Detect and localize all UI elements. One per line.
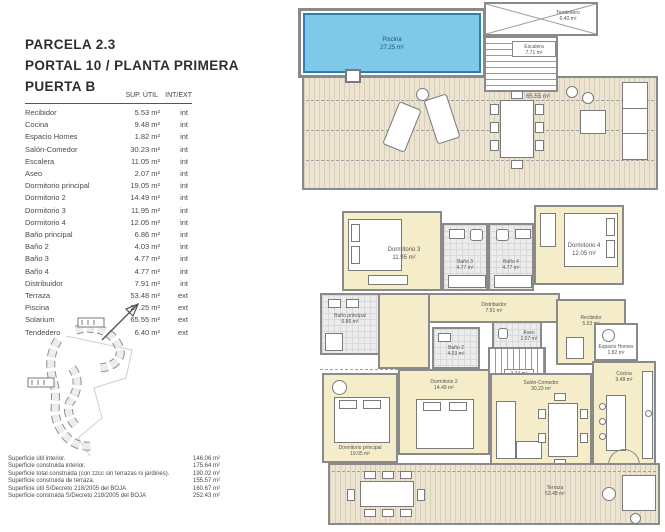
table-row: Recibidor5.53 m²int: [25, 107, 192, 119]
barbecue-counter: [580, 110, 606, 134]
room-area: 9.48 m²: [108, 119, 160, 131]
dining-table: [548, 403, 578, 457]
summary-value: 155.57 m²: [178, 478, 220, 485]
room-scope: ext: [160, 290, 192, 302]
room-label: Dormitorio 2: [25, 192, 108, 204]
summary-row: Superficie construida S/Decreto 218/2005…: [8, 493, 220, 500]
table-row: Dormitorio 311.95 m²int: [25, 205, 192, 217]
table-row: Baño 44.77 m²int: [25, 266, 192, 278]
swimming-pool: Piscina 27.25 m²: [303, 13, 481, 73]
room-area: 6.40 m²: [542, 16, 594, 22]
summary-label: Superficie útil interior.: [8, 456, 178, 463]
room-label: Espacio Homes 1.82 m²: [596, 344, 636, 356]
summary-row: Superficie total construida (con zzcc si…: [8, 471, 220, 478]
bed: [416, 399, 474, 449]
table-row: Dormitorio principal19.05 m²int: [25, 180, 192, 192]
room-area: 2.07 m²: [506, 336, 552, 342]
room-label: Dormitorio 4 12.05 m²: [546, 243, 622, 258]
side-table: [416, 88, 429, 101]
room-area: 4.77 m²: [108, 266, 160, 278]
kitchen-counter: [642, 371, 653, 459]
sink: [328, 299, 341, 308]
sink: [438, 333, 451, 342]
room-scope: int: [160, 144, 192, 156]
room-scope: int: [160, 107, 192, 119]
room-scope: int: [160, 266, 192, 278]
room-scope: int: [160, 180, 192, 192]
summary-row: Superficie construida de terraza.155.57 …: [8, 478, 220, 485]
room-label: Cocina: [25, 119, 108, 131]
sun-lounger: [423, 93, 460, 144]
chair: [364, 509, 376, 517]
upper-staircase: Escalera 7.71 m²: [484, 36, 558, 92]
stool: [599, 418, 606, 425]
overhang-line: [332, 471, 656, 472]
room-label: Dormitorio 4: [25, 217, 108, 229]
distribuidor: Distribuidor 7.91 m²: [428, 293, 560, 323]
pool-room: Piscina 27.25 m²: [298, 8, 486, 78]
room-label: Dormitorio 3 11.95 m²: [368, 247, 440, 262]
summary-row: Superficie útil S/Decreto 218/2005 del B…: [8, 486, 220, 493]
room-area: 5.53 m²: [108, 107, 160, 119]
room-scope: int: [160, 229, 192, 241]
bed: [564, 213, 618, 267]
table-row: Cocina9.48 m²int: [25, 119, 192, 131]
room-area: 19.05 m²: [324, 451, 396, 457]
surface-summary: Superficie útil interior.146.06 m² Super…: [8, 456, 220, 500]
bathtub: [494, 275, 532, 288]
room-scope: int: [160, 253, 192, 265]
plan-sheet: PARCELA 2.3 PORTAL 10 / PLANTA PRIMERA P…: [0, 0, 665, 532]
chair: [382, 471, 394, 479]
room-label: Baño 2 4.03 m²: [434, 345, 478, 357]
room-area: 12.05 m²: [108, 217, 160, 229]
room-label: Terraza 53.48 m²: [520, 485, 590, 497]
bano-4: Baño 4 4.77 m²: [488, 223, 534, 291]
projection-line: [320, 369, 398, 370]
room-scope: int: [160, 241, 192, 253]
shower: [325, 333, 343, 351]
terraza: Terraza 53.48 m²: [328, 463, 660, 525]
room-area: 11.05 m²: [108, 156, 160, 168]
chair: [490, 104, 499, 115]
bano-3: Baño 3 4.77 m²: [442, 223, 488, 291]
table-row: Baño 34.77 m²int: [25, 253, 192, 265]
bano-2: Baño 2 4.03 m²: [432, 327, 480, 369]
sun-lounger: [382, 101, 421, 153]
room-label: Dormitorio principal: [25, 180, 108, 192]
aseo: Aseo 2.07 m²: [492, 321, 542, 349]
chair: [490, 122, 499, 133]
room-area: 19.05 m²: [108, 180, 160, 192]
chair: [580, 433, 588, 443]
chair: [535, 104, 544, 115]
room-label: Baño 3 4.77 m²: [444, 259, 486, 271]
sink-basin: [582, 92, 594, 104]
room-label: Distribuidor 7.91 m²: [430, 302, 558, 314]
cocina: Cocina 9.48 m²: [592, 361, 656, 465]
outdoor-dining-table: [360, 481, 414, 507]
chair: [400, 509, 412, 517]
room-name: Dormitorio 3: [368, 247, 440, 255]
room-scope: int: [160, 217, 192, 229]
sofa-chaise: [516, 441, 542, 459]
toilet: [470, 229, 483, 241]
dormitorio-principal: Dormitorio principal 19.05 m²: [322, 373, 398, 463]
room-area: 4.03 m²: [108, 241, 160, 253]
summary-value: 146.06 m²: [178, 456, 220, 463]
chair: [554, 393, 566, 401]
chair: [490, 140, 499, 151]
chair: [417, 489, 425, 501]
table-row: Espacio Homes1.82 m²int: [25, 131, 192, 143]
washing-machine: [602, 329, 615, 342]
sink: [645, 410, 652, 417]
room-area: 4.77 m²: [490, 265, 532, 271]
room-scope: int: [160, 119, 192, 131]
chair: [535, 122, 544, 133]
room-scope: int: [160, 205, 192, 217]
table-row: Dormitorio 214.49 m²int: [25, 192, 192, 204]
sheet-title: PARCELA 2.3 PORTAL 10 / PLANTA PRIMERA P…: [25, 34, 239, 97]
table-row: Distribuidor7.91 m²int: [25, 278, 192, 290]
sink: [449, 229, 465, 239]
location-arrow-icon: [96, 292, 150, 346]
room-area: 11.95 m²: [108, 205, 160, 217]
dormitorio-2: Dormitorio 2 14.49 m²: [398, 369, 490, 455]
table-row: Dormitorio 412.05 m²int: [25, 217, 192, 229]
summary-label: Superficie construida S/Decreto 218/2005…: [8, 493, 178, 500]
stool: [599, 433, 606, 440]
solarium-cabinets: [622, 82, 648, 160]
room-area: 6.86 m²: [322, 319, 378, 325]
summary-value: 175.64 m²: [178, 463, 220, 470]
room-area: 4.77 m²: [108, 253, 160, 265]
summary-value: 160.67 m²: [178, 486, 220, 493]
room-area: 30.23 m²: [492, 386, 590, 392]
room-area: 2.07 m²: [108, 168, 160, 180]
room-label: Distribuidor: [25, 278, 108, 290]
summary-row: Superficie construida interior.175.64 m²: [8, 463, 220, 470]
sink: [346, 299, 359, 308]
planter: [630, 513, 641, 524]
header-int-ext: INT/EXT: [158, 92, 192, 99]
table-row: Baño 24.03 m²int: [25, 241, 192, 253]
room-area: 14.49 m²: [400, 385, 488, 391]
pool-steps: [345, 69, 361, 83]
table-row: Salón-Comedor30.23 m²int: [25, 144, 192, 156]
room-area: 30.23 m²: [108, 144, 160, 156]
console-cabinet: [566, 337, 584, 359]
chair: [347, 489, 355, 501]
pergola-line: [306, 160, 654, 161]
toilet: [496, 229, 509, 241]
bench: [368, 275, 408, 285]
chair: [364, 471, 376, 479]
room-name: Dormitorio 4: [546, 243, 622, 251]
title-parcela: PARCELA 2.3: [25, 34, 239, 55]
table-rule: [25, 103, 192, 104]
room-label: Baño 3: [25, 253, 108, 265]
room-label: Escalera: [25, 156, 108, 168]
room-area: 6.86 m²: [108, 229, 160, 241]
chair: [511, 160, 523, 169]
side-table: [602, 487, 616, 501]
summary-value: 190.02 m²: [178, 471, 220, 478]
salon-comedor: Salón-Comedor 30.23 m²: [490, 373, 592, 469]
title-portal-planta: PORTAL 10 / PLANTA PRIMERA: [25, 55, 239, 76]
room-label: Espacio Homes: [25, 131, 108, 143]
room-label: Dormitorio 2 14.49 m²: [400, 379, 488, 391]
room-scope: int: [160, 156, 192, 168]
dormitorio-3: Dormitorio 3 11.95 m²: [342, 211, 442, 291]
room-scope: ext: [160, 314, 192, 326]
room-area: 4.77 m²: [444, 265, 486, 271]
room-label: Baño 2: [25, 241, 108, 253]
upper-floor-plan: Solarium 65.55 m²: [298, 2, 662, 196]
summary-label: Superficie útil S/Decreto 218/2005 del B…: [8, 486, 178, 493]
chair: [538, 433, 546, 443]
summary-value: 252.43 m²: [178, 493, 220, 500]
room-scope: ext: [160, 327, 192, 339]
wardrobe: [540, 213, 556, 247]
room-area: 1.82 m²: [108, 131, 160, 143]
room-label: Piscina 27.25 m²: [305, 37, 479, 52]
chair: [400, 471, 412, 479]
room-scope: int: [160, 131, 192, 143]
armchair: [332, 380, 347, 395]
bathtub: [448, 275, 486, 288]
room-label: Baño 4 4.77 m²: [490, 259, 532, 271]
table-row: Aseo2.07 m²int: [25, 168, 192, 180]
room-area: 27.25 m²: [305, 45, 479, 53]
room-scope: int: [160, 192, 192, 204]
room-area: 4.03 m²: [434, 351, 478, 357]
room-scope: int: [160, 168, 192, 180]
room-name: Piscina: [305, 37, 479, 45]
room-label: Salón-Comedor: [25, 144, 108, 156]
area-table-header: SUP. ÚTIL INT/EXT: [25, 92, 192, 99]
room-label: Baño 4: [25, 266, 108, 278]
room-area: 7.71 m²: [513, 50, 555, 56]
room-label: Recibidor: [25, 107, 108, 119]
table-row: Escalera11.05 m²int: [25, 156, 192, 168]
lower-floor-plan: Dormitorio 3 11.95 m² Baño 3 4.77 m² Bañ…: [320, 197, 662, 530]
bed: [348, 219, 402, 271]
room-area: 1.82 m²: [596, 350, 636, 356]
kitchen-island: [606, 395, 626, 451]
room-scope: ext: [160, 302, 192, 314]
room-area: 14.49 m²: [108, 192, 160, 204]
room-area: 12.05 m²: [546, 251, 622, 259]
summary-row: Superficie útil interior.146.06 m²: [8, 456, 220, 463]
room-label: Baño principal 6.86 m²: [322, 313, 378, 325]
espacio-homes: Espacio Homes 1.82 m²: [594, 323, 638, 361]
solarium: Solarium 65.55 m²: [302, 76, 658, 190]
room-label: Dormitorio principal 19.05 m²: [324, 445, 396, 457]
sink: [515, 229, 531, 239]
stool: [599, 403, 606, 410]
tendedero: Tendedero 6.40 m²: [484, 2, 598, 36]
chair: [382, 509, 394, 517]
chair: [535, 140, 544, 151]
outdoor-lounge: [622, 475, 656, 511]
room-label: Tendedero 6.40 m²: [542, 10, 594, 22]
room-area: 7.91 m²: [430, 308, 558, 314]
summary-label: Superficie construida interior.: [8, 463, 178, 470]
room-label: Aseo: [25, 168, 108, 180]
bed: [334, 397, 390, 443]
summary-label: Superficie construida de terraza.: [8, 478, 178, 485]
sink-basin: [566, 86, 578, 98]
chair: [538, 409, 546, 419]
room-label: Dormitorio 3: [25, 205, 108, 217]
summary-label: Superficie total construida (con zzcc si…: [8, 471, 178, 478]
room-area: 53.48 m²: [520, 491, 590, 497]
hallway: [378, 293, 430, 369]
room-area: 7.91 m²: [108, 278, 160, 290]
bano-principal: Baño principal 6.86 m²: [320, 293, 380, 355]
room-scope: int: [160, 278, 192, 290]
header-sup-util: SUP. ÚTIL: [102, 92, 158, 99]
room-area: 11.95 m²: [368, 255, 440, 263]
dormitorio-4: Dormitorio 4 12.05 m²: [534, 205, 624, 285]
sofa: [496, 401, 516, 459]
outdoor-dining-table: [500, 100, 534, 158]
room-label: Salón-Comedor 30.23 m²: [492, 380, 590, 392]
room-label: Baño principal: [25, 229, 108, 241]
chair: [580, 409, 588, 419]
room-label: Escalera 7.71 m²: [512, 41, 556, 57]
room-label: Aseo 2.07 m²: [506, 330, 552, 342]
table-row: Baño principal6.86 m²int: [25, 229, 192, 241]
